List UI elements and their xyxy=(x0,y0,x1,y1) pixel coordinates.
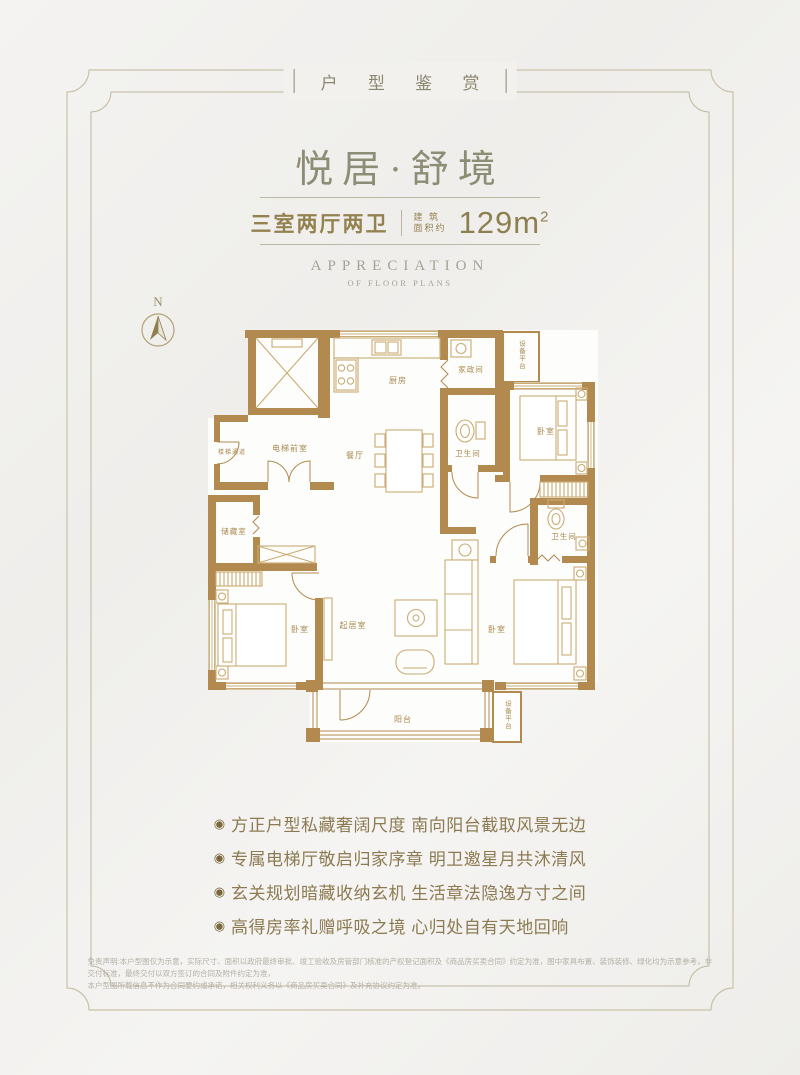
compass-north-label: N xyxy=(153,294,163,309)
feature-item: ◉ 高得房率礼赠呼吸之境 心归处自有天地回响 xyxy=(214,913,587,938)
poster-page: 户 型 鉴 赏 悦居·舒境 三室两厅两卫 建 筑 面积约 129m2 APPRE… xyxy=(0,0,800,1075)
bullet-icon: ◉ xyxy=(214,885,225,898)
feature-list: ◉ 方正户型私藏奢阔尺度 南向阳台截取风景无边 ◉ 专属电梯厅敬启归家序章 明卫… xyxy=(214,811,587,938)
stove-icon xyxy=(336,360,356,390)
tag-right-bar xyxy=(505,69,506,93)
floor-base xyxy=(208,330,598,742)
disclaimer: 免责声明:本户型图仅为示意，实际尺寸、面积以政府最终审批、竣工验收及房管部门核准… xyxy=(88,956,713,992)
layout-label: 三室两厅两卫 xyxy=(251,208,389,238)
room-label-stair: 楼梯通道 xyxy=(218,448,246,456)
room-label-dining: 餐厅 xyxy=(346,451,364,460)
bullet-icon: ◉ xyxy=(214,851,225,864)
room-label-bed3: 卧室 xyxy=(488,624,506,634)
rule-below-spec xyxy=(260,244,540,245)
rule-above-spec xyxy=(260,197,540,198)
disclaimer-line1: 免责声明:本户型图仅为示意，实际尺寸、面积以政府最终审批、竣工验收及房管部门核准… xyxy=(88,956,713,980)
area-label: 建 筑 面积约 xyxy=(414,212,447,235)
room-label-laundry: 家政间 xyxy=(458,364,484,374)
feature-item: ◉ 专属电梯厅敬启归家序章 明卫邀星月共沐清风 xyxy=(214,845,587,870)
bed3-icon xyxy=(514,567,586,680)
room-label-bed2: 卧室 xyxy=(291,624,309,634)
tag-left-bar xyxy=(294,69,295,93)
room-label-balcony: 阳台 xyxy=(394,714,412,724)
area-superscript: 2 xyxy=(540,209,549,226)
area-value: 129m2 xyxy=(459,205,550,241)
room-label-bed1: 卧室 xyxy=(537,426,555,436)
room-label-bath1: 卫生间 xyxy=(455,448,481,458)
tag-label: 户 型 鉴 赏 xyxy=(308,69,493,94)
sink-icon xyxy=(372,340,401,355)
spec-row: 三室两厅两卫 建 筑 面积约 129m2 xyxy=(0,202,800,244)
room-label-kitchen: 厨房 xyxy=(389,375,407,385)
room-label-lobby: 电梯前室 xyxy=(272,443,308,453)
feature-text: 专属电梯厅敬启归家序章 明卫邀星月共沐清风 xyxy=(231,845,586,870)
area-label-top: 建 筑 xyxy=(414,212,447,223)
bullet-icon: ◉ xyxy=(214,817,225,830)
disclaimer-line2: 本户型图所载信息不作为合同要约或承诺，相关权利义务以《商品房买卖合同》及补充协议… xyxy=(88,980,713,992)
bullet-icon: ◉ xyxy=(214,919,225,932)
spec-divider xyxy=(401,210,402,236)
floor-plan: 楼梯通道 电梯前室 厨房 家政间 设备平台 卫生间 卧室 餐厅 储藏室 卫生间 … xyxy=(190,330,610,770)
room-label-living: 起居室 xyxy=(340,620,367,630)
english-subtitle: APPRECIATION OF FLOOR PLANS xyxy=(0,258,800,288)
feature-item: ◉ 方正户型私藏奢阔尺度 南向阳台截取风景无边 xyxy=(214,811,587,836)
english-subtitle-line1: APPRECIATION xyxy=(0,258,800,275)
header-tag: 户 型 鉴 赏 xyxy=(284,62,517,100)
area-number: 129m xyxy=(459,205,541,240)
feature-item: ◉ 玄关规划暗藏收纳玄机 生活章法隐逸方寸之间 xyxy=(214,879,587,904)
coffee-table-icon xyxy=(395,600,437,636)
feature-text: 高得房率礼赠呼吸之境 心归处自有天地回响 xyxy=(231,913,569,938)
page-title: 悦居·舒境 xyxy=(0,138,800,193)
english-subtitle-line2: OF FLOOR PLANS xyxy=(0,278,800,288)
area-label-bottom: 面积约 xyxy=(414,223,447,234)
north-compass-icon: N xyxy=(130,290,186,356)
feature-text: 方正户型私藏奢阔尺度 南向阳台截取风景无边 xyxy=(231,811,586,836)
feature-text: 玄关规划暗藏收纳玄机 生活章法隐逸方寸之间 xyxy=(231,879,586,904)
room-label-bath2: 卫生间 xyxy=(551,531,577,541)
room-label-storage: 储藏室 xyxy=(221,526,247,536)
